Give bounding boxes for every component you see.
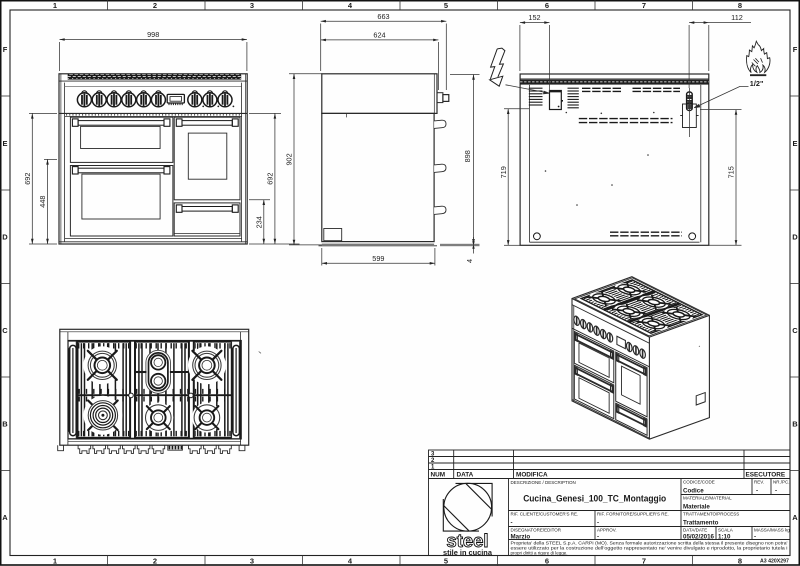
svg-text:663: 663 [377, 12, 389, 21]
svg-text:624: 624 [373, 31, 385, 40]
svg-text:-: - [775, 487, 777, 494]
svg-text:448: 448 [38, 196, 47, 208]
svg-text:F: F [793, 45, 798, 54]
svg-text:1: 1 [53, 1, 57, 10]
svg-text:6: 6 [545, 557, 549, 566]
svg-text:898: 898 [463, 150, 472, 162]
svg-text:692: 692 [266, 173, 275, 185]
svg-text:REV.: REV. [754, 480, 764, 485]
svg-text:NUM: NUM [431, 471, 446, 478]
svg-text:8: 8 [738, 557, 742, 566]
svg-text:5: 5 [444, 1, 448, 10]
svg-text:692: 692 [23, 173, 32, 185]
svg-text:-: - [597, 533, 599, 540]
svg-text:4: 4 [465, 259, 474, 263]
svg-text:112: 112 [731, 13, 743, 22]
svg-text:3: 3 [250, 557, 254, 566]
svg-text:Materiale: Materiale [683, 504, 710, 511]
svg-text:MODIFICA: MODIFICA [516, 471, 548, 478]
svg-text:-: - [756, 487, 758, 494]
svg-text:1:10: 1:10 [718, 533, 731, 540]
svg-text:1: 1 [53, 557, 57, 566]
svg-text:CODICE/CODE: CODICE/CODE [683, 480, 715, 485]
svg-text:E: E [792, 139, 797, 148]
svg-text:Trattamento: Trattamento [683, 519, 719, 526]
svg-text:152: 152 [528, 13, 540, 22]
svg-text:5: 5 [444, 557, 448, 566]
svg-text:998: 998 [147, 30, 159, 39]
svg-text:A3 420X297: A3 420X297 [760, 559, 789, 565]
svg-text:599: 599 [372, 254, 384, 263]
svg-text:3: 3 [250, 1, 254, 10]
svg-text:E: E [2, 139, 7, 148]
svg-text:7: 7 [642, 1, 646, 10]
svg-text:DISEGNATORE/EDITOR: DISEGNATORE/EDITOR [511, 528, 562, 533]
svg-text:8: 8 [738, 1, 742, 10]
svg-text:Codice: Codice [683, 487, 704, 494]
svg-text:MASSA/MASS kg: MASSA/MASS kg [754, 528, 790, 533]
svg-text:NR./PC.: NR./PC. [773, 480, 790, 485]
svg-text:F: F [3, 45, 8, 54]
svg-text:234: 234 [255, 216, 264, 228]
svg-text:B: B [2, 420, 8, 429]
svg-text:719: 719 [499, 166, 508, 178]
svg-text:7: 7 [642, 557, 646, 566]
svg-text:A: A [2, 513, 8, 522]
svg-text:C: C [2, 326, 8, 335]
svg-text:C: C [792, 326, 798, 335]
svg-text:715: 715 [727, 166, 736, 178]
svg-text:902: 902 [285, 153, 294, 165]
svg-text:05/02/2016: 05/02/2016 [683, 533, 715, 540]
svg-text:DESCRIZIONE / DESCRIPTION: DESCRIZIONE / DESCRIPTION [511, 480, 576, 485]
svg-text:SCALA: SCALA [718, 528, 733, 533]
svg-text:1/2": 1/2" [750, 79, 764, 88]
svg-text:D: D [2, 233, 8, 242]
svg-text:ESECUTORE: ESECUTORE [746, 471, 786, 478]
svg-text:stile in cucina: stile in cucina [443, 548, 493, 557]
svg-text:APPROV.: APPROV. [597, 528, 617, 533]
svg-text:-: - [754, 533, 756, 540]
svg-text:2: 2 [153, 1, 157, 10]
svg-text:Marzio: Marzio [511, 533, 531, 540]
svg-text:-: - [511, 519, 513, 526]
svg-text:DATA/DATE: DATA/DATE [683, 528, 707, 533]
svg-text:Cucina_Genesi_100_TC_Montaggio: Cucina_Genesi_100_TC_Montaggio [523, 494, 666, 505]
svg-text:RIF. FORNITORE/SUPPLIER'S RE.: RIF. FORNITORE/SUPPLIER'S RE. [597, 512, 669, 517]
svg-text:6: 6 [545, 1, 549, 10]
svg-text:2: 2 [153, 557, 157, 566]
svg-text:A: A [792, 513, 798, 522]
svg-text:MATERIALE/MATERIAL: MATERIALE/MATERIAL [683, 496, 732, 501]
svg-text:B: B [792, 420, 798, 429]
svg-text:DATA: DATA [457, 471, 474, 478]
svg-text:propri diritti a rigore di leg: propri diritti a rigore di legge. [511, 551, 568, 556]
svg-text:D: D [792, 233, 798, 242]
svg-text:-: - [597, 519, 599, 526]
svg-text:TRATTAMENTO/PROCESS: TRATTAMENTO/PROCESS [683, 512, 739, 517]
svg-text:RIF. CLIENTE/CUSTOMER'S RE.: RIF. CLIENTE/CUSTOMER'S RE. [511, 512, 579, 517]
